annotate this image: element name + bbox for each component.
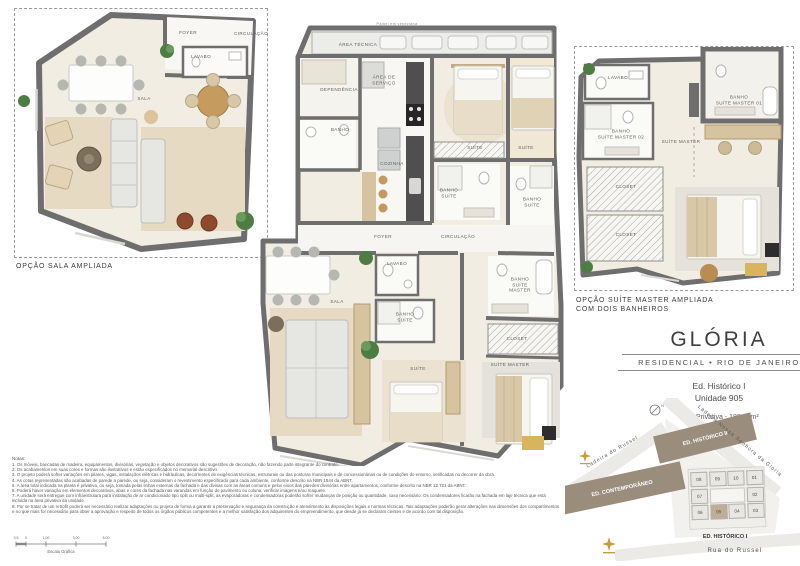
closet-rack: [488, 324, 558, 354]
pillow: [394, 385, 438, 394]
building-historico-1-label: ED. HISTÓRICO I: [703, 532, 748, 540]
sink: [629, 71, 643, 79]
logo-icon: [602, 537, 616, 553]
steel-unit: [378, 150, 400, 170]
side-table: [268, 316, 284, 332]
ac-condensers: [380, 36, 548, 49]
project-subtitle: RESIDENCIAL • RIO DE JANEIRO: [618, 358, 800, 371]
fridge: [362, 62, 384, 88]
sink: [229, 52, 241, 60]
toilet: [623, 111, 633, 123]
svg-text:3,00: 3,00: [73, 536, 80, 540]
floor-plan-suite-master-ampliada: LAVABOBANHO SUÍTE MASTER 01BANHO SUÍTE M…: [574, 46, 794, 291]
sink: [404, 280, 412, 288]
wood-cabinet: [362, 172, 376, 226]
stools: [379, 176, 388, 213]
blanket: [454, 100, 502, 134]
scale-bar: 0,5 0 1,00 3,00 5,00 Escala Gráfica: [10, 533, 120, 560]
courtyard: [709, 487, 745, 503]
blanket: [390, 412, 442, 442]
suite-master-drawing: [575, 47, 793, 290]
unit-cell: 09: [709, 471, 727, 487]
shower: [585, 105, 611, 129]
closet-rack: [434, 142, 504, 158]
scale-bar-label: Escala Gráfica: [47, 549, 75, 554]
toilet: [192, 57, 200, 67]
blanket: [496, 376, 522, 442]
plan-caption-sala-ampliada: OPÇÃO SALA AMPLIADA: [16, 262, 113, 271]
desk-chair: [719, 142, 732, 155]
note-item: 3. O projeto poderá sofrer variações em …: [12, 472, 560, 477]
pillow: [458, 69, 498, 79]
sink: [306, 127, 316, 137]
tv-unit: [765, 243, 779, 257]
desk: [705, 125, 781, 139]
closet-rack: [587, 215, 663, 261]
kitchen-sink: [409, 178, 421, 194]
pillow: [743, 199, 757, 255]
vanity: [715, 107, 755, 115]
toilet: [497, 264, 507, 276]
note-item: 7. A unidade será entregue com infraestr…: [12, 493, 560, 503]
unit-cell: 02: [746, 486, 764, 502]
accent-chair: [177, 213, 193, 229]
blanket: [687, 197, 717, 257]
notes-list: 1. Os móveis, bancadas de madeira, equip…: [12, 462, 560, 514]
gold-mat: [522, 436, 544, 450]
floor-plan-main: Painel em veneziana ÁREA TÉCNICADEPENDÊN…: [258, 8, 576, 466]
unit-cell-highlighted: 05: [710, 504, 728, 520]
sala-ampliada-drawing: [15, 9, 267, 257]
unit-grid: 08 09 10 01 07 02 06 05 04 03: [690, 470, 764, 521]
round-wood-table: [197, 85, 229, 117]
desk: [446, 362, 460, 414]
project-title: GLÓRIA: [622, 328, 800, 355]
sofa: [141, 139, 165, 223]
dependencia-bed: [302, 60, 346, 84]
unit-cell: 01: [746, 470, 764, 486]
pillow: [516, 69, 550, 78]
unit-cell: 07: [691, 488, 709, 504]
toilet: [479, 172, 489, 184]
unit-cell: 10: [727, 470, 745, 486]
legal-notes: Notas: 1. Os móveis, bancadas de madeira…: [12, 456, 560, 514]
plan-caption-suite-master: OPÇÃO SUÍTE MASTER AMPLIADA COM DOIS BAN…: [576, 296, 714, 315]
unit-cell: 03: [747, 503, 765, 519]
steel-unit: [378, 128, 400, 148]
shower: [438, 166, 462, 190]
vanity: [464, 208, 494, 217]
floorplan-sheet: { "title_block": { "title": "GLÓRIA", "s…: [0, 0, 800, 561]
shower: [530, 166, 552, 188]
stove: [406, 104, 424, 126]
building-name: Ed. Histórico I: [616, 381, 800, 391]
desk-chair: [749, 142, 762, 155]
svg-text:1,00: 1,00: [43, 536, 50, 540]
note-item: 8. Por se tratar de um retrofit poderá s…: [12, 504, 560, 514]
main-plan-drawing: [258, 8, 576, 466]
svg-text:5,00: 5,00: [103, 536, 110, 540]
closet-rack: [587, 167, 663, 211]
bathtub: [536, 260, 552, 294]
accent-chair: [201, 215, 217, 231]
compass-icon: N: [650, 403, 664, 415]
svg-text:N: N: [661, 403, 664, 408]
floor-plan-sala-ampliada: FOYERCIRCULAÇÃOLAVABOSALA: [14, 8, 268, 258]
svg-text:0: 0: [25, 536, 27, 540]
wall-stub: [689, 83, 699, 117]
dining-table: [69, 65, 133, 101]
gold-mat: [745, 263, 767, 276]
unit-cell: 08: [690, 472, 708, 488]
blanket: [512, 98, 554, 128]
bathtub: [763, 87, 777, 115]
svg-text:0,5: 0,5: [14, 536, 19, 540]
toilet: [413, 307, 423, 319]
building-contemporaneo: ED. CONTEMPORÂNEO: [565, 461, 686, 514]
vanity: [605, 147, 639, 155]
toilet: [596, 77, 606, 89]
unit-cell: 04: [728, 503, 746, 519]
site-map-drawing: ED. HISTÓRICO II ED. CONTEMPORÂNEO Ladei…: [565, 398, 800, 561]
toilet: [340, 125, 349, 136]
street-label: Rua do Russel: [708, 548, 763, 554]
shower: [378, 302, 400, 324]
sofa: [286, 320, 348, 418]
side-table: [144, 110, 158, 124]
sideboard: [354, 304, 370, 424]
dining-table: [266, 256, 330, 294]
tv-unit: [542, 426, 556, 440]
vanity: [492, 304, 528, 313]
pouf: [700, 264, 718, 282]
unit-cell: 06: [691, 505, 709, 521]
toilet: [516, 178, 526, 190]
notes-title: Notas:: [12, 456, 560, 461]
toilet: [716, 65, 726, 77]
site-map: ED. HISTÓRICO II ED. CONTEMPORÂNEO Ladei…: [565, 398, 800, 561]
toilet: [383, 264, 393, 276]
